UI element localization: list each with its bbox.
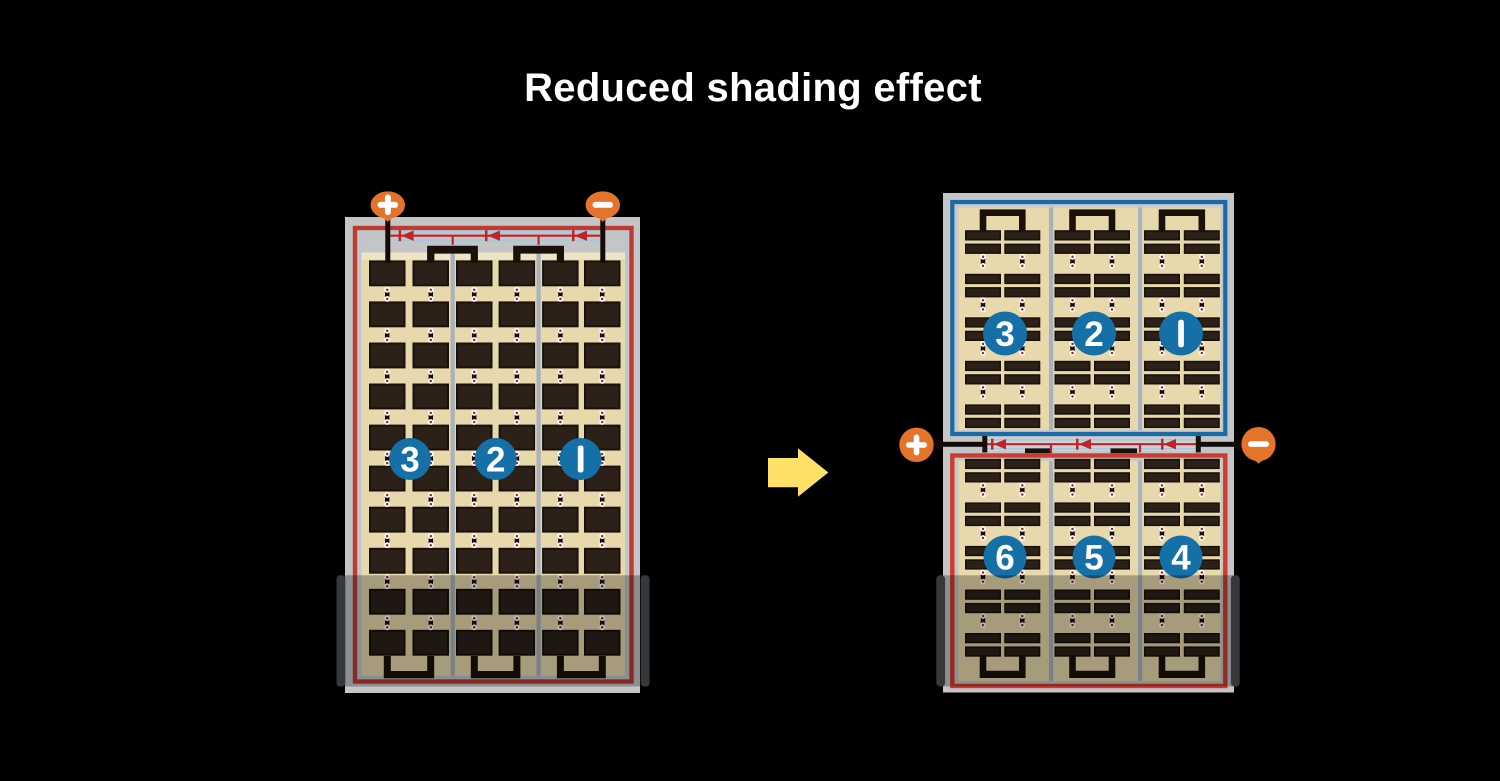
svg-text:3: 3: [995, 315, 1014, 354]
svg-text:4: 4: [1171, 539, 1191, 578]
svg-text:Reduced shading effect: Reduced shading effect: [524, 66, 982, 110]
svg-text:2: 2: [486, 441, 505, 480]
svg-text:3: 3: [400, 441, 419, 480]
svg-text:5: 5: [1084, 539, 1103, 578]
svg-text:2: 2: [1084, 315, 1103, 354]
svg-text:6: 6: [995, 539, 1014, 578]
